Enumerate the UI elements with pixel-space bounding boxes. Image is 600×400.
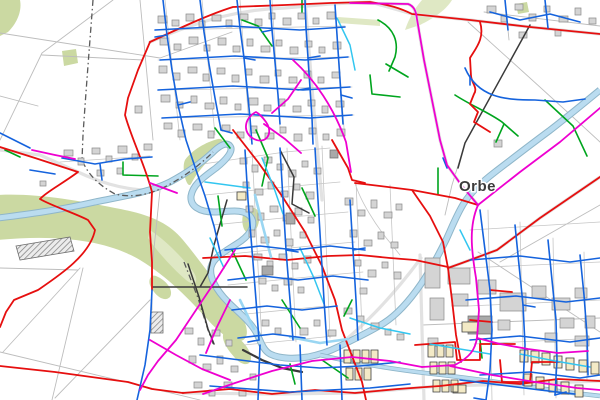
layer-vegetation [0, 0, 529, 364]
place-label-orbe: Orbe [459, 178, 496, 195]
map-svg: Orbe [0, 0, 600, 400]
blue-line [465, 0, 585, 102]
map-canvas[interactable]: Orbe [0, 0, 600, 400]
hatched-building-west [16, 237, 74, 260]
buildings-upper-town [158, 12, 345, 141]
magenta-line [350, 3, 478, 205]
black-line [280, 150, 309, 213]
red-line [0, 366, 183, 393]
hatched-building-south [151, 312, 163, 333]
